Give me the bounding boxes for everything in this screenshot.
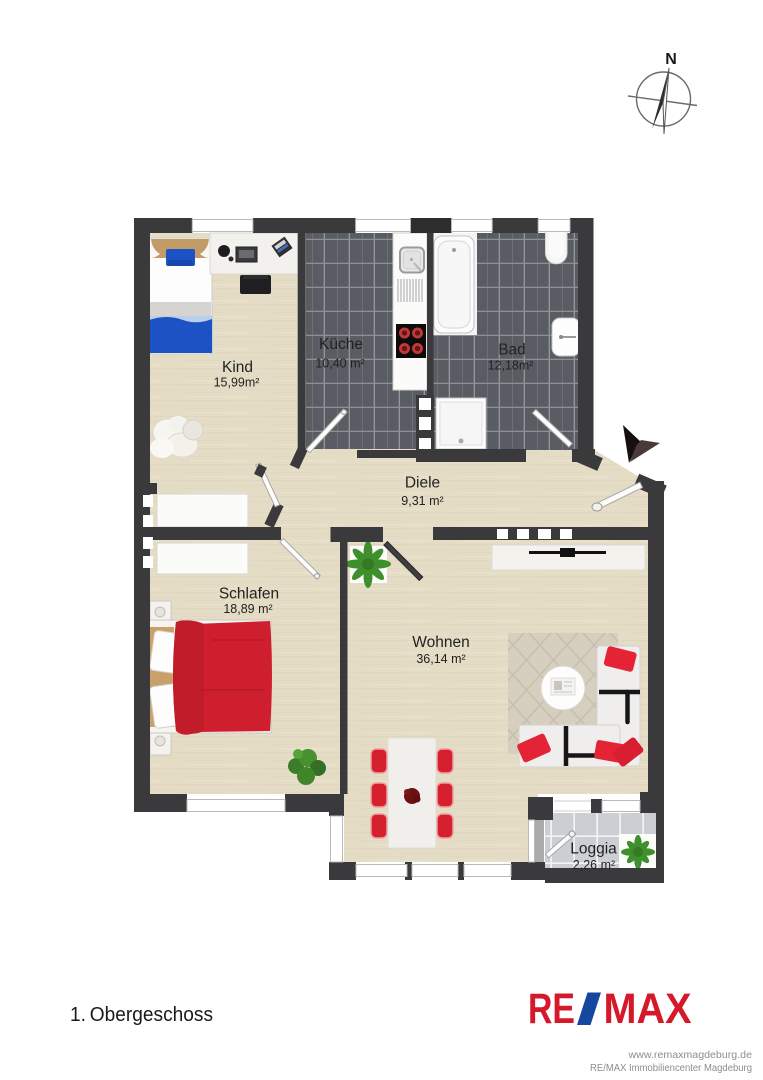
svg-text:2,26 m²: 2,26 m² — [573, 858, 615, 872]
svg-text:1. Obergeschoss: 1. Obergeschoss — [70, 1004, 213, 1026]
svg-text:15,99m²: 15,99m² — [214, 376, 260, 390]
svg-text:Küche: Küche — [319, 336, 363, 353]
svg-text:RE/MAX Immobiliencenter Magdeb: RE/MAX Immobiliencenter Magdeburg — [590, 1062, 752, 1074]
svg-text:N: N — [665, 51, 677, 68]
svg-text:RE: RE — [528, 985, 575, 1033]
svg-text:Wohnen: Wohnen — [412, 634, 469, 651]
svg-text:Loggia: Loggia — [570, 841, 617, 858]
svg-text:Schlafen: Schlafen — [219, 586, 279, 603]
svg-text:MAX: MAX — [604, 985, 692, 1033]
svg-text:12,18m²: 12,18m² — [488, 359, 534, 373]
svg-text:18,89 m²: 18,89 m² — [223, 602, 272, 616]
svg-text:www.remaxmagdeburg.de: www.remaxmagdeburg.de — [627, 1049, 752, 1061]
svg-text:Bad: Bad — [498, 342, 526, 359]
svg-text:36,14 m²: 36,14 m² — [416, 652, 465, 666]
svg-text:Diele: Diele — [405, 475, 440, 492]
svg-text:Kind: Kind — [222, 359, 253, 376]
svg-text:10,40 m²: 10,40 m² — [315, 357, 364, 371]
svg-text:9,31 m²: 9,31 m² — [401, 494, 443, 508]
